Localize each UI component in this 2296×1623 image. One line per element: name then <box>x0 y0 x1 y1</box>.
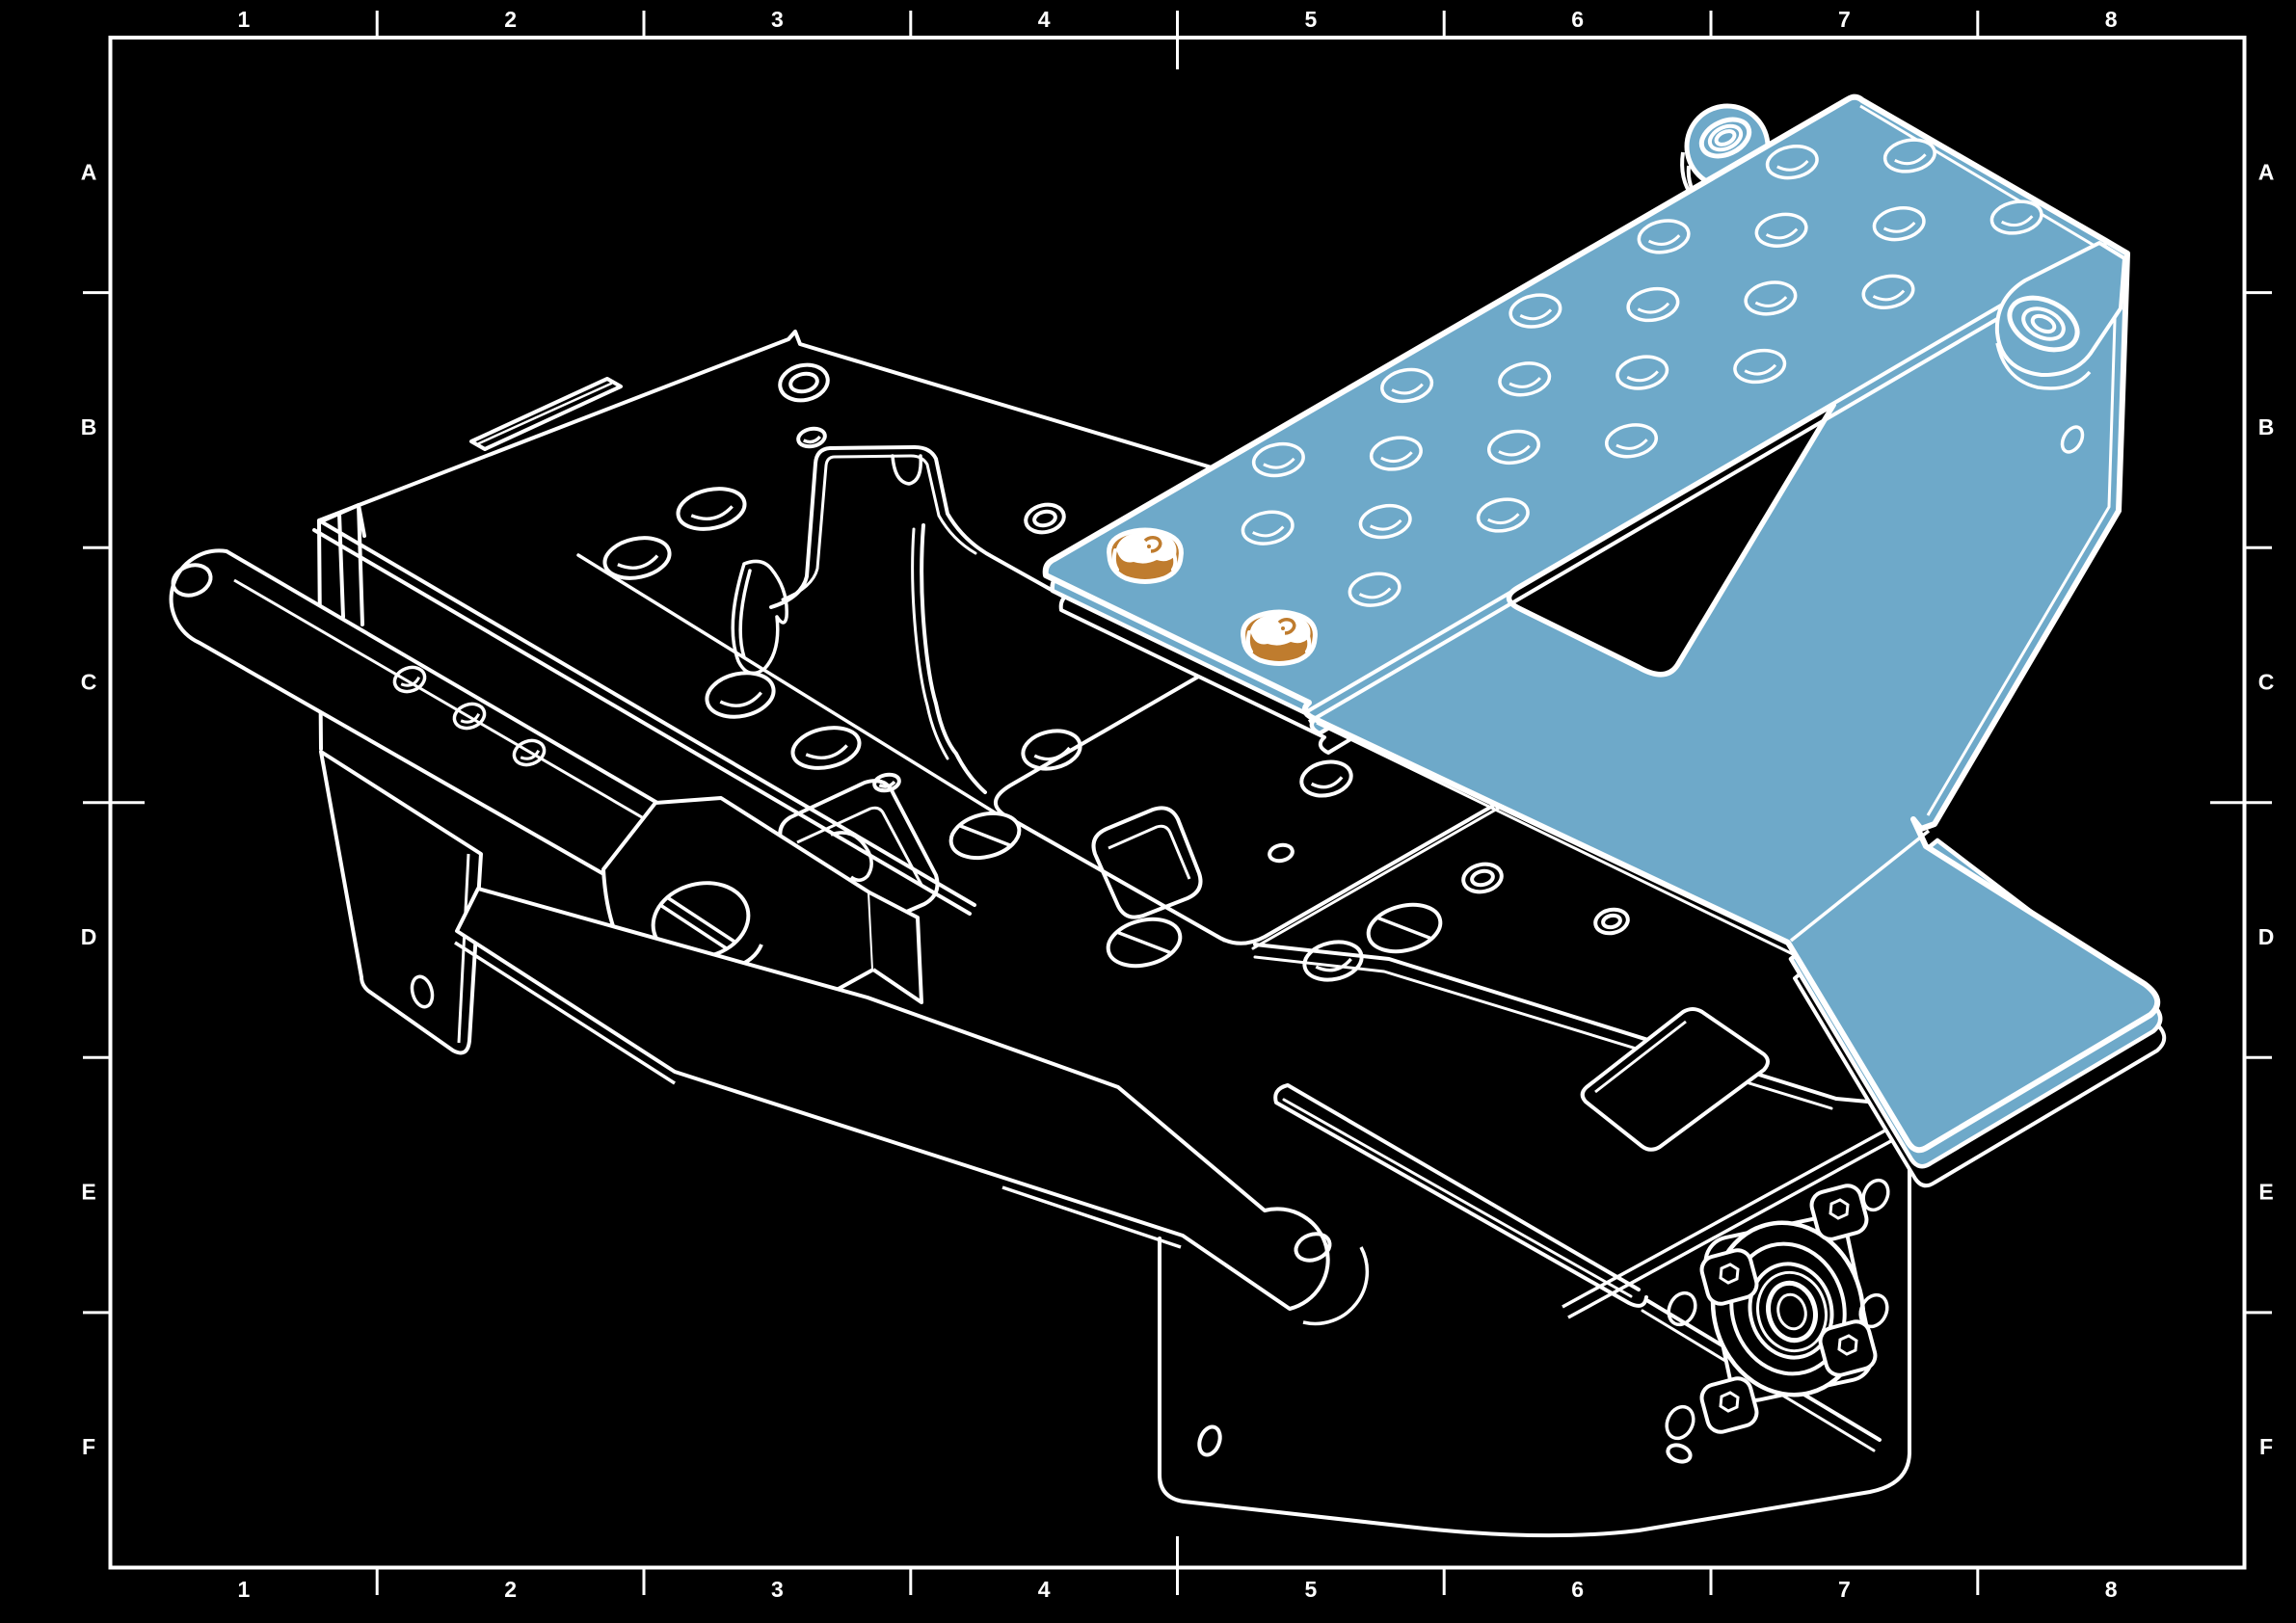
svg-text:4: 4 <box>1038 1577 1051 1602</box>
svg-text:1: 1 <box>238 1577 251 1602</box>
svg-text:1: 1 <box>238 7 251 32</box>
svg-text:8: 8 <box>2105 7 2118 32</box>
svg-text:6: 6 <box>1571 1577 1584 1602</box>
svg-text:6: 6 <box>1571 7 1584 32</box>
svg-text:B: B <box>81 414 97 439</box>
svg-text:3: 3 <box>771 7 784 32</box>
svg-text:5: 5 <box>1305 7 1318 32</box>
svg-text:F: F <box>2259 1434 2273 1459</box>
svg-text:5: 5 <box>1305 1577 1318 1602</box>
svg-text:8: 8 <box>2105 1577 2118 1602</box>
svg-text:D: D <box>81 924 97 949</box>
svg-text:F: F <box>82 1434 95 1459</box>
svg-text:D: D <box>2258 924 2275 949</box>
svg-text:7: 7 <box>1838 1577 1851 1602</box>
svg-text:3: 3 <box>771 1577 784 1602</box>
svg-text:2: 2 <box>504 7 517 32</box>
svg-text:E: E <box>81 1180 95 1205</box>
svg-text:2: 2 <box>504 1577 517 1602</box>
svg-text:B: B <box>2258 414 2275 439</box>
svg-text:C: C <box>2258 670 2275 695</box>
svg-text:A: A <box>2258 159 2275 184</box>
svg-text:7: 7 <box>1838 7 1851 32</box>
svg-text:E: E <box>2258 1180 2273 1205</box>
svg-text:C: C <box>81 670 97 695</box>
svg-text:A: A <box>81 159 97 184</box>
svg-text:4: 4 <box>1038 7 1051 32</box>
